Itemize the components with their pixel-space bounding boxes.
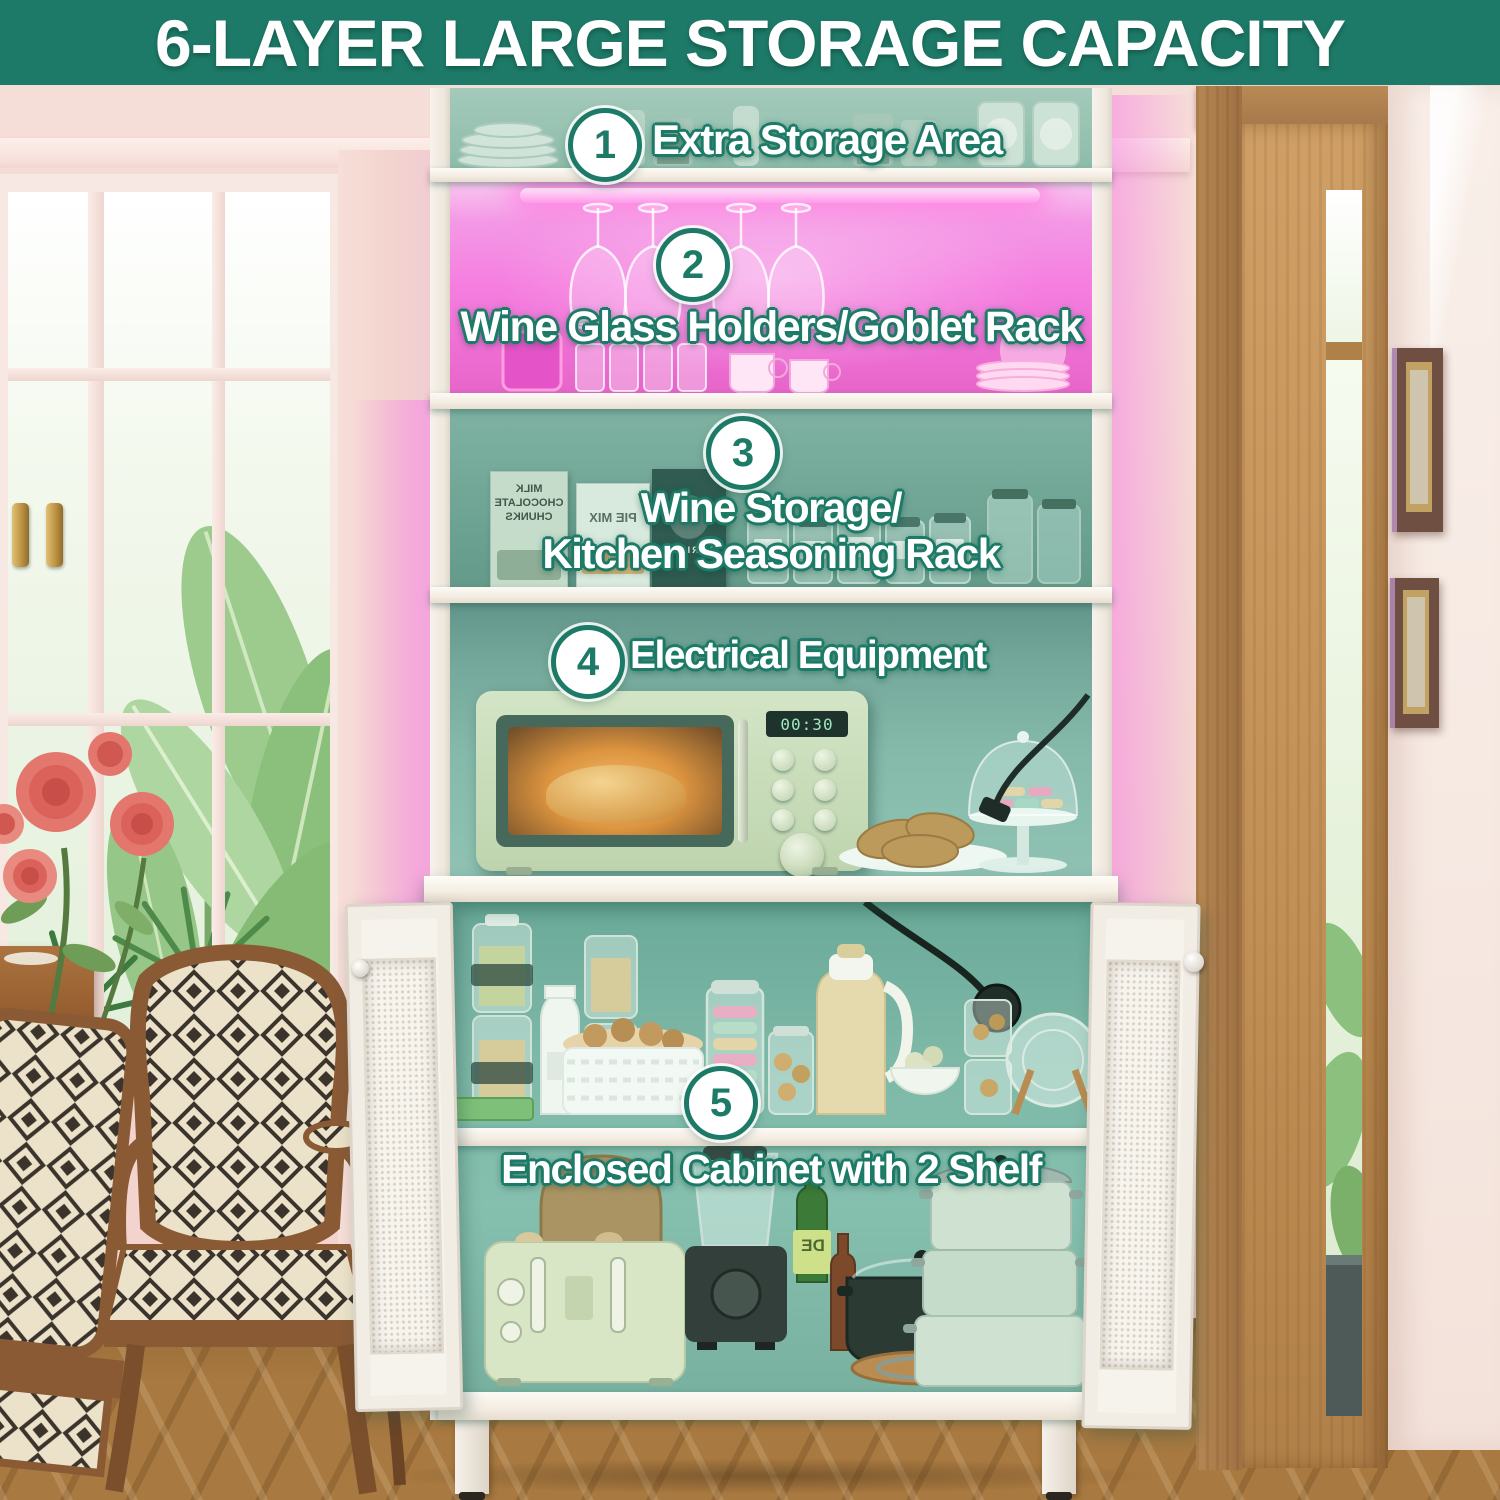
window-muntin-horizontal-1 bbox=[8, 368, 330, 381]
lace-basket bbox=[563, 1018, 703, 1114]
green-tray bbox=[447, 1098, 533, 1120]
toaster bbox=[485, 1232, 685, 1386]
leg-foot-right bbox=[1046, 1492, 1072, 1500]
door-pane-leaves bbox=[1326, 360, 1362, 1416]
callout-3-label-line2: Kitchen Seasoning Rack bbox=[430, 530, 1112, 578]
cabinet-leg-left bbox=[455, 1420, 489, 1494]
callout-3-label-line1: Wine Storage/ bbox=[430, 484, 1112, 532]
callout-5-number: 5 bbox=[710, 1081, 732, 1126]
callout-5-badge: 5 bbox=[684, 1066, 758, 1140]
cabinet-upper-items bbox=[445, 902, 1097, 1128]
window-handle-right bbox=[46, 503, 63, 567]
wooden-door bbox=[1242, 124, 1388, 1468]
thermal-carafe bbox=[817, 944, 908, 1114]
cookie-jar bbox=[769, 1026, 813, 1114]
door-glass-rail bbox=[1326, 342, 1362, 360]
door-glass-pane-top bbox=[1326, 190, 1362, 342]
product-infographic: MILK CHOCOLATE CHUNKS PIE MIX BARISTA bbox=[0, 0, 1500, 1500]
callout-3-number: 3 bbox=[732, 431, 754, 476]
callout-4-badge: 4 bbox=[551, 625, 625, 699]
plate-on-stand bbox=[1007, 1014, 1097, 1114]
bottle-label: DE bbox=[793, 1236, 833, 1256]
layer2-items bbox=[448, 182, 1094, 393]
shelf-board-2 bbox=[430, 393, 1112, 409]
picture-frame-top bbox=[1392, 348, 1443, 532]
title-banner: 6-LAYER LARGE STORAGE CAPACITY bbox=[0, 0, 1500, 85]
picture-frame-top-photo bbox=[1410, 370, 1428, 504]
door-frame-post bbox=[1196, 86, 1242, 1470]
callout-5-label: Enclosed Cabinet with 2 Shelf bbox=[430, 1146, 1112, 1193]
callout-2-label: Wine Glass Holders/Goblet Rack bbox=[430, 303, 1112, 352]
callout-1-badge: 1 bbox=[568, 108, 642, 182]
callout-2-badge: 2 bbox=[656, 228, 730, 302]
leg-foot-left bbox=[459, 1492, 485, 1500]
callout-4-label: Electrical Equipment bbox=[630, 634, 986, 678]
shelf-board-1 bbox=[430, 168, 1112, 182]
picture-frame-bottom-photo bbox=[1407, 597, 1425, 707]
picture-frame-bottom bbox=[1390, 578, 1439, 728]
door-knob-left[interactable] bbox=[352, 960, 369, 977]
cabinet-middle-shelf bbox=[445, 1128, 1097, 1146]
window-handle-left bbox=[12, 503, 29, 567]
cabinet-bottom-board bbox=[438, 1392, 1104, 1420]
callout-3-badge: 3 bbox=[706, 416, 780, 490]
storage-cabinet: MILK CHOCOLATE CHUNKS PIE MIX BARISTA bbox=[430, 88, 1112, 1500]
shelf-board-3 bbox=[430, 587, 1112, 603]
countertop bbox=[424, 876, 1118, 902]
door-knob-right[interactable] bbox=[1184, 952, 1204, 972]
rose-blooms bbox=[0, 732, 174, 903]
callout-2-number: 2 bbox=[682, 243, 704, 288]
callout-1-label: Extra Storage Area bbox=[652, 116, 1002, 164]
door-glass-pane-bottom bbox=[1326, 360, 1362, 1416]
callout-1-number: 1 bbox=[594, 123, 616, 168]
layer2-wine-glass-area bbox=[448, 182, 1094, 393]
cups bbox=[730, 354, 840, 393]
window-muntin-horizontal-2 bbox=[8, 713, 330, 726]
cabinet-leg-right bbox=[1042, 1420, 1076, 1494]
callout-4-number: 4 bbox=[577, 640, 599, 685]
page-title: 6-LAYER LARGE STORAGE CAPACITY bbox=[155, 5, 1345, 81]
